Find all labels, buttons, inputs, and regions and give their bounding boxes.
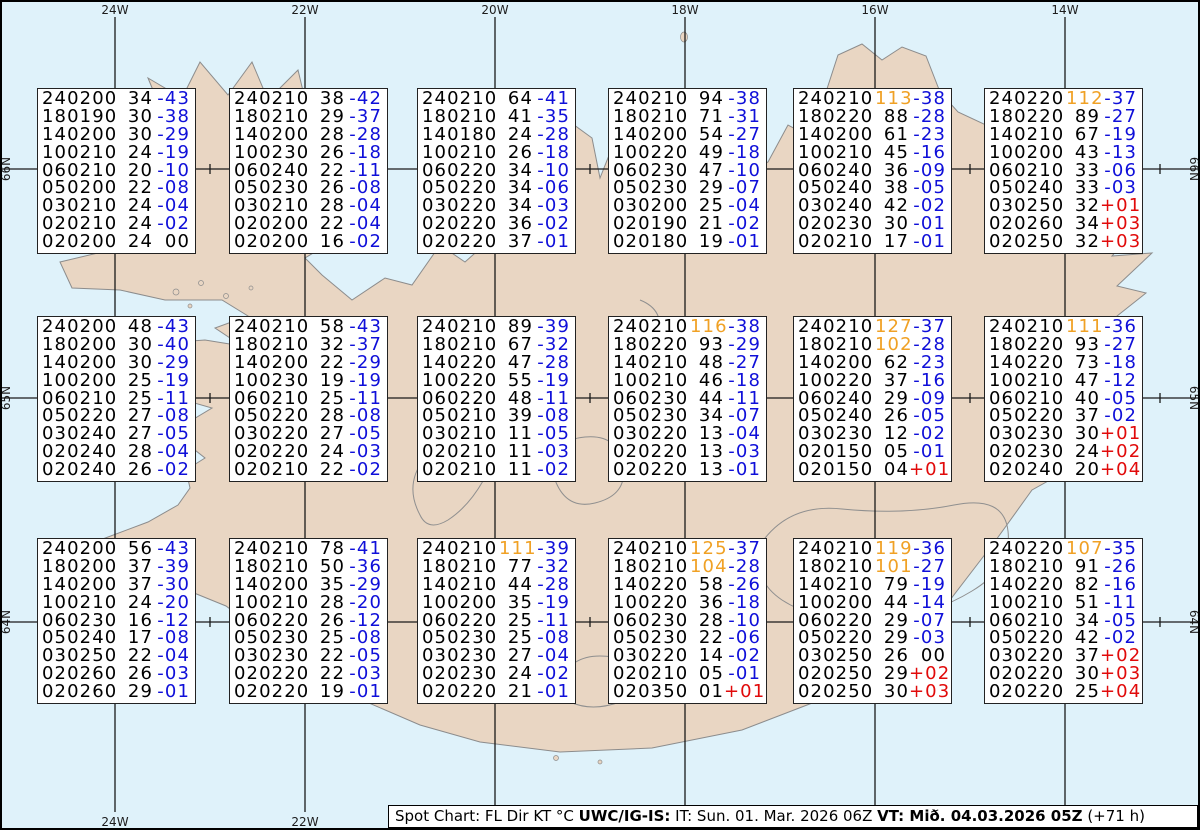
temperature-c: -27 [724, 354, 761, 372]
spot-line: 10021047-12 [989, 372, 1139, 390]
spot-data-box: 24021089-3918021067-3214022047-281002205… [417, 316, 576, 482]
flight-level-direction: 020240 [42, 461, 119, 479]
flight-level-direction: 100220 [613, 594, 690, 612]
temperature-c: -01 [909, 233, 946, 251]
wind-speed-kt: 19 [690, 233, 724, 251]
spot-data-box: 24021078-4118021050-3614020035-291002102… [229, 538, 388, 704]
spot-line: 10022049-18 [613, 144, 763, 162]
flight-level-direction: 140200 [234, 354, 311, 372]
flight-level-direction: 020250 [798, 683, 875, 701]
spot-line: 02024026-02 [42, 461, 192, 479]
spot-line: 02021017-01 [798, 233, 948, 251]
wind-speed-kt: 47 [499, 354, 533, 372]
spot-line: 02022019-01 [234, 683, 384, 701]
spot-data-box: 240210125-37180210104-2814022058-2610022… [608, 538, 767, 704]
flight-level-direction: 100200 [422, 594, 499, 612]
flight-level-direction: 020220 [422, 233, 499, 251]
footer-bar: Spot Chart: FL Dir KT °C UWC/IG-IS: IT: … [388, 805, 1198, 828]
temperature-c: -18 [345, 144, 382, 162]
flight-level-direction: 020200 [234, 233, 311, 251]
spot-line: 14020062-23 [798, 354, 948, 372]
spot-line: 14020037-30 [42, 576, 192, 594]
spot-line: 14020054-27 [613, 126, 763, 144]
flight-level-direction: 140200 [798, 126, 875, 144]
temperature-c: +03 [1100, 233, 1137, 251]
temperature-c: -29 [345, 354, 382, 372]
spot-line: 02025032+03 [989, 233, 1139, 251]
temperature-c: -01 [153, 683, 190, 701]
temperature-c: -28 [533, 354, 570, 372]
wind-speed-kt: 26 [499, 144, 533, 162]
spot-line: 14022047-28 [422, 354, 572, 372]
wind-speed-kt: 19 [311, 683, 345, 701]
wind-speed-kt: 24 [119, 233, 153, 251]
spot-line: 02025030+03 [798, 683, 948, 701]
spot-line: 02015004+01 [798, 461, 948, 479]
flight-level-direction: 100210 [798, 144, 875, 162]
flight-level-direction: 140200 [42, 354, 119, 372]
wind-speed-kt: 58 [690, 576, 724, 594]
temperature-c: +04 [1100, 683, 1137, 701]
temperature-c: -27 [724, 126, 761, 144]
wind-speed-kt: 79 [875, 576, 909, 594]
temperature-c: -11 [1100, 594, 1137, 612]
spot-data-box: 24020048-4318020030-4014020030-291002002… [37, 316, 196, 482]
spot-data-box: 24021058-4318021032-3714020022-291002301… [229, 316, 388, 482]
spot-line: 02020016-02 [234, 233, 384, 251]
wind-speed-kt: 01 [690, 683, 724, 701]
flight-level-direction: 020260 [42, 683, 119, 701]
spot-line: 10022055-19 [422, 372, 572, 390]
spot-line: 02026029-01 [42, 683, 192, 701]
temperature-c: -28 [533, 576, 570, 594]
flight-level-direction: 140200 [798, 354, 875, 372]
spot-line: 10022037-16 [798, 372, 948, 390]
spot-line: 02022025+04 [989, 683, 1139, 701]
spot-boxes-layer: 24020034-4318019030-3814020030-291002102… [0, 0, 1200, 830]
spot-data-box: 240210113-3818022088-2814020061-23100210… [793, 88, 952, 254]
spot-line: 14020030-29 [42, 354, 192, 372]
spot-line: 14020028-28 [234, 126, 384, 144]
temperature-c: -23 [909, 126, 946, 144]
temperature-c: -19 [345, 372, 382, 390]
spot-line: 10020044-14 [798, 594, 948, 612]
temperature-c: -19 [909, 576, 946, 594]
temperature-c: -01 [724, 233, 761, 251]
temperature-c: +04 [1100, 461, 1137, 479]
temperature-c: +01 [909, 461, 946, 479]
flight-level-direction: 020220 [613, 461, 690, 479]
spot-data-box: 240210111-3618022093-2714022073-18100210… [984, 316, 1143, 482]
wind-speed-kt: 13 [690, 461, 724, 479]
spot-line: 02035001+01 [613, 683, 763, 701]
wind-speed-kt: 47 [1066, 372, 1100, 390]
spot-data-box: 240210116-3818022093-2914021048-27100210… [608, 316, 767, 482]
spot-line: 10021051-11 [989, 594, 1139, 612]
wind-speed-kt: 24 [119, 144, 153, 162]
flight-level-direction: 020200 [42, 233, 119, 251]
spot-line: 14021044-28 [422, 576, 572, 594]
wind-speed-kt: 48 [690, 354, 724, 372]
flight-level-direction: 100210 [613, 372, 690, 390]
flight-level-direction: 100220 [798, 372, 875, 390]
temperature-c: -01 [533, 683, 570, 701]
spot-data-box: 24021094-3818021071-3114020054-271002204… [608, 88, 767, 254]
wind-speed-kt: 28 [311, 126, 345, 144]
wind-speed-kt: 24 [499, 126, 533, 144]
temperature-c: -02 [345, 461, 382, 479]
wind-speed-kt: 61 [875, 126, 909, 144]
spot-line: 14020030-29 [42, 126, 192, 144]
footer-valid-time: VT: Mið. 04.03.2026 05Z [877, 807, 1082, 825]
flight-level-direction: 020220 [234, 683, 311, 701]
wind-speed-kt: 45 [875, 144, 909, 162]
spot-line: 10022036-18 [613, 594, 763, 612]
temperature-c: -19 [1100, 126, 1137, 144]
wind-speed-kt: 25 [1066, 683, 1100, 701]
footer-chart-type: Spot Chart: FL Dir KT °C [395, 807, 579, 825]
temperature-c: -01 [345, 683, 382, 701]
flight-level-direction: 020250 [989, 233, 1066, 251]
flight-level-direction: 140200 [234, 576, 311, 594]
temperature-c: -16 [1100, 576, 1137, 594]
flight-level-direction: 100210 [42, 594, 119, 612]
spot-line: 14021079-19 [798, 576, 948, 594]
wind-speed-kt: 73 [1066, 354, 1100, 372]
temperature-c: -01 [724, 461, 761, 479]
temperature-c: +03 [909, 683, 946, 701]
wind-speed-kt: 21 [499, 683, 533, 701]
spot-chart-frame: 24W 22W 20W 18W 16W 14W 24W 22W 20W 18W … [0, 0, 1200, 830]
flight-level-direction: 020350 [613, 683, 690, 701]
flight-level-direction: 140210 [422, 576, 499, 594]
spot-line: 10021045-16 [798, 144, 948, 162]
temperature-c: -02 [345, 233, 382, 251]
wind-speed-kt: 54 [690, 126, 724, 144]
wind-speed-kt: 20 [1066, 461, 1100, 479]
wind-speed-kt: 44 [875, 594, 909, 612]
temperature-c: -19 [533, 372, 570, 390]
flight-level-direction: 100210 [234, 594, 311, 612]
spot-line: 0202002400 [42, 233, 192, 251]
temperature-c: -19 [153, 144, 190, 162]
flight-level-direction: 140200 [234, 126, 311, 144]
wind-speed-kt: 22 [311, 354, 345, 372]
wind-speed-kt: 62 [875, 354, 909, 372]
temperature-c: -02 [153, 461, 190, 479]
spot-line: 02021022-02 [234, 461, 384, 479]
temperature-c: -28 [533, 126, 570, 144]
temperature-c: -16 [909, 372, 946, 390]
temperature-c: -20 [153, 594, 190, 612]
wind-speed-kt: 30 [875, 683, 909, 701]
wind-speed-kt: 04 [875, 461, 909, 479]
spot-line: 14021067-19 [989, 126, 1139, 144]
wind-speed-kt: 29 [119, 683, 153, 701]
spot-line: 02022021-01 [422, 683, 572, 701]
flight-level-direction: 140220 [989, 576, 1066, 594]
flight-level-direction: 140220 [613, 576, 690, 594]
temperature-c: -18 [724, 372, 761, 390]
wind-speed-kt: 51 [1066, 594, 1100, 612]
temperature-c: -18 [724, 594, 761, 612]
spot-line: 02022013-01 [613, 461, 763, 479]
temperature-c: -14 [909, 594, 946, 612]
temperature-c: -16 [909, 144, 946, 162]
flight-level-direction: 100230 [234, 144, 311, 162]
spot-data-box: 240220112-3718022089-2714021067-19100200… [984, 88, 1143, 254]
flight-level-direction: 140210 [989, 126, 1066, 144]
spot-data-box: 24020056-4318020037-3914020037-301002102… [37, 538, 196, 704]
wind-speed-kt: 82 [1066, 576, 1100, 594]
temperature-c: -01 [533, 233, 570, 251]
footer-issue-time: IT: Sun. 01. Mar. 2026 06Z [670, 807, 877, 825]
spot-data-box: 240210119-36180210101-2714021079-1910020… [793, 538, 952, 704]
flight-level-direction: 100210 [989, 372, 1066, 390]
spot-line: 14020035-29 [234, 576, 384, 594]
wind-speed-kt: 35 [499, 594, 533, 612]
wind-speed-kt: 36 [690, 594, 724, 612]
spot-line: 10021046-18 [613, 372, 763, 390]
wind-speed-kt: 55 [499, 372, 533, 390]
flight-level-direction: 140220 [989, 354, 1066, 372]
wind-speed-kt: 25 [119, 372, 153, 390]
temperature-c: -29 [345, 576, 382, 594]
spot-line: 10020025-19 [42, 372, 192, 390]
flight-level-direction: 140200 [42, 126, 119, 144]
flight-level-direction: 100220 [613, 144, 690, 162]
flight-level-direction: 020180 [613, 233, 690, 251]
spot-line: 10021028-20 [234, 594, 384, 612]
wind-speed-kt: 67 [1066, 126, 1100, 144]
temperature-c: -30 [153, 576, 190, 594]
spot-data-box: 240220107-3518021091-2614022082-16100210… [984, 538, 1143, 704]
flight-level-direction: 100210 [989, 594, 1066, 612]
spot-line: 10023026-18 [234, 144, 384, 162]
temperature-c: -02 [533, 461, 570, 479]
temperature-c: 00 [153, 233, 190, 251]
temperature-c: -29 [153, 126, 190, 144]
wind-speed-kt: 35 [311, 576, 345, 594]
flight-level-direction: 020220 [422, 683, 499, 701]
spot-line: 14020022-29 [234, 354, 384, 372]
temperature-c: -20 [345, 594, 382, 612]
temperature-c: -13 [1100, 144, 1137, 162]
wind-speed-kt: 44 [499, 576, 533, 594]
spot-line: 10021024-20 [42, 594, 192, 612]
spot-line: 10023019-19 [234, 372, 384, 390]
wind-speed-kt: 30 [119, 126, 153, 144]
wind-speed-kt: 43 [1066, 144, 1100, 162]
flight-level-direction: 020210 [798, 233, 875, 251]
temperature-c: -19 [153, 372, 190, 390]
flight-level-direction: 100200 [989, 144, 1066, 162]
wind-speed-kt: 24 [119, 594, 153, 612]
wind-speed-kt: 46 [690, 372, 724, 390]
temperature-c: -18 [533, 144, 570, 162]
spot-line: 14022082-16 [989, 576, 1139, 594]
wind-speed-kt: 49 [690, 144, 724, 162]
spot-line: 14021048-27 [613, 354, 763, 372]
wind-speed-kt: 32 [1066, 233, 1100, 251]
flight-level-direction: 020220 [989, 683, 1066, 701]
spot-line: 02024020+04 [989, 461, 1139, 479]
temperature-c: -26 [724, 576, 761, 594]
flight-level-direction: 100210 [42, 144, 119, 162]
flight-level-direction: 020210 [234, 461, 311, 479]
wind-speed-kt: 26 [311, 144, 345, 162]
spot-line: 10020043-13 [989, 144, 1139, 162]
spot-line: 14022058-26 [613, 576, 763, 594]
temperature-c: -12 [1100, 372, 1137, 390]
flight-level-direction: 140210 [798, 576, 875, 594]
temperature-c: -23 [909, 354, 946, 372]
flight-level-direction: 100200 [42, 372, 119, 390]
wind-speed-kt: 26 [119, 461, 153, 479]
wind-speed-kt: 28 [311, 594, 345, 612]
spot-line: 10021024-19 [42, 144, 192, 162]
spot-line: 10020035-19 [422, 594, 572, 612]
spot-line: 10021026-18 [422, 144, 572, 162]
wind-speed-kt: 37 [875, 372, 909, 390]
wind-speed-kt: 37 [499, 233, 533, 251]
flight-level-direction: 020150 [798, 461, 875, 479]
spot-line: 02021011-02 [422, 461, 572, 479]
spot-line: 14022073-18 [989, 354, 1139, 372]
flight-level-direction: 140200 [42, 576, 119, 594]
footer-lead-time: (+71 h) [1083, 807, 1145, 825]
temperature-c: -18 [1100, 354, 1137, 372]
wind-speed-kt: 17 [875, 233, 909, 251]
flight-level-direction: 140220 [422, 354, 499, 372]
wind-speed-kt: 30 [119, 354, 153, 372]
wind-speed-kt: 16 [311, 233, 345, 251]
footer-source: UWC/IG-IS: [579, 807, 671, 825]
spot-data-box: 240210127-37180210102-2814020062-2310022… [793, 316, 952, 482]
wind-speed-kt: 22 [311, 461, 345, 479]
spot-line: 14018024-28 [422, 126, 572, 144]
spot-data-box: 24021064-4118021041-3514018024-281002102… [417, 88, 576, 254]
temperature-c: +01 [724, 683, 761, 701]
flight-level-direction: 100220 [422, 372, 499, 390]
flight-level-direction: 140200 [613, 126, 690, 144]
flight-level-direction: 100200 [798, 594, 875, 612]
spot-data-box: 24020034-4318019030-3814020030-291002102… [37, 88, 196, 254]
temperature-c: -19 [533, 594, 570, 612]
flight-level-direction: 100210 [422, 144, 499, 162]
temperature-c: -28 [345, 126, 382, 144]
spot-data-box: 24021038-4218021029-3714020028-281002302… [229, 88, 388, 254]
wind-speed-kt: 19 [311, 372, 345, 390]
spot-line: 02018019-01 [613, 233, 763, 251]
wind-speed-kt: 11 [499, 461, 533, 479]
flight-level-direction: 140180 [422, 126, 499, 144]
wind-speed-kt: 37 [119, 576, 153, 594]
flight-level-direction: 020210 [422, 461, 499, 479]
spot-line: 02022037-01 [422, 233, 572, 251]
spot-line: 14020061-23 [798, 126, 948, 144]
temperature-c: -29 [153, 354, 190, 372]
temperature-c: -18 [724, 144, 761, 162]
flight-level-direction: 100230 [234, 372, 311, 390]
spot-data-box: 240210111-3918021077-3214021044-28100200… [417, 538, 576, 704]
flight-level-direction: 140210 [613, 354, 690, 372]
flight-level-direction: 020240 [989, 461, 1066, 479]
